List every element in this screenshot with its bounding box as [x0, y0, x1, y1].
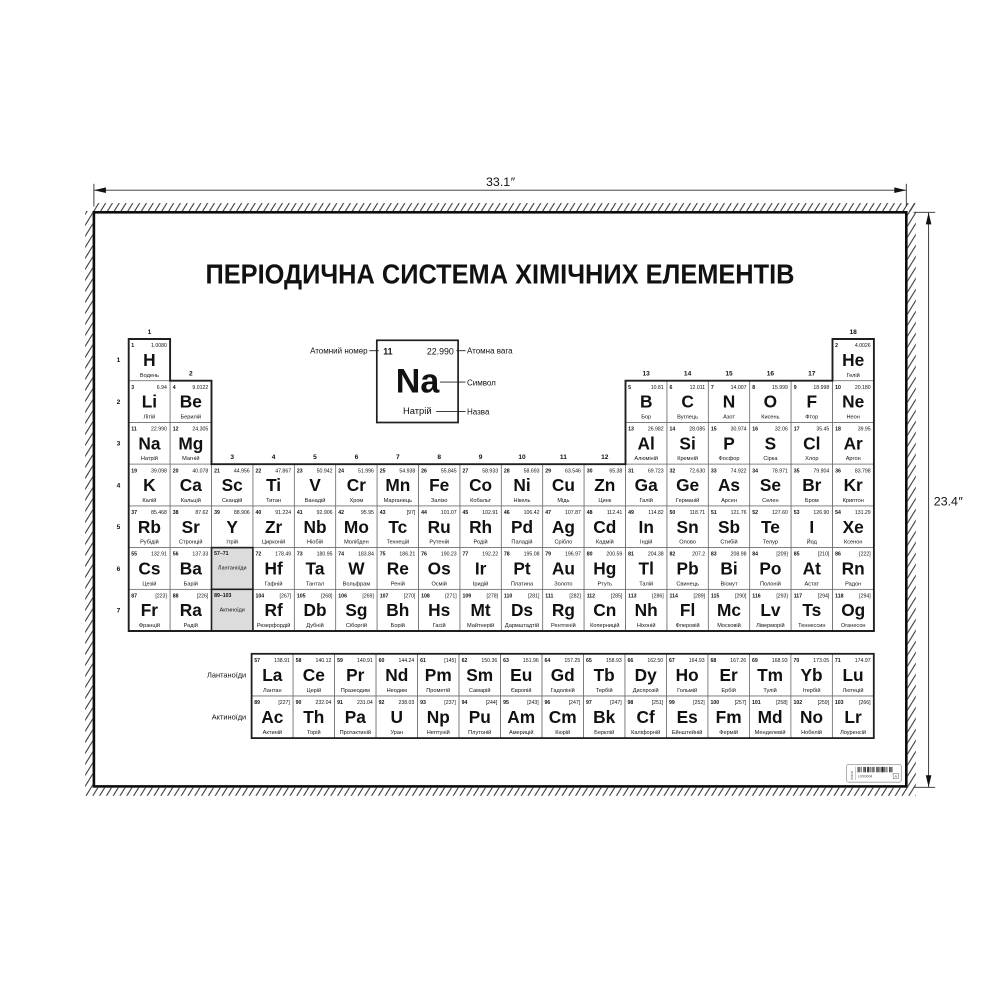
svg-text:Гольмій: Гольмій	[677, 687, 697, 694]
svg-text:118: 118	[835, 593, 843, 599]
svg-text:74: 74	[338, 552, 344, 558]
svg-text:232.04: 232.04	[315, 700, 331, 706]
svg-text:10: 10	[518, 454, 526, 461]
svg-text:Ніобій: Ніобій	[307, 539, 323, 546]
svg-text:44.956: 44.956	[234, 468, 250, 474]
svg-text:23: 23	[297, 468, 303, 474]
svg-text:87: 87	[131, 593, 137, 599]
svg-text:Олово: Олово	[679, 540, 696, 546]
svg-text:Телур: Телур	[763, 540, 778, 546]
svg-text:Цезій: Цезій	[142, 580, 156, 587]
svg-text:Pt: Pt	[513, 559, 531, 579]
svg-text:100: 100	[710, 700, 719, 706]
svg-text:58.933: 58.933	[482, 468, 498, 474]
svg-text:Ga: Ga	[635, 475, 658, 495]
svg-text:54: 54	[835, 510, 841, 516]
svg-text:Nh: Nh	[635, 600, 658, 620]
svg-text:196.97: 196.97	[565, 552, 581, 558]
svg-text:[227]: [227]	[278, 700, 290, 706]
svg-text:Водень: Водень	[140, 373, 159, 379]
svg-text:[281]: [281]	[528, 593, 540, 599]
svg-text:32.06: 32.06	[775, 427, 788, 433]
svg-text:207.2: 207.2	[692, 552, 705, 558]
svg-text:74.922: 74.922	[731, 468, 747, 474]
svg-text:Технецій: Технецій	[386, 539, 409, 546]
svg-text:92.906: 92.906	[317, 510, 333, 516]
svg-text:Ar: Ar	[844, 433, 863, 453]
svg-text:Фосфор: Фосфор	[719, 456, 740, 462]
svg-text:101.07: 101.07	[441, 510, 457, 516]
svg-text:Цирконій: Цирконій	[262, 539, 285, 546]
svg-text:8: 8	[752, 385, 755, 391]
svg-text:24.305: 24.305	[192, 427, 208, 433]
svg-text:Іридій: Іридій	[473, 580, 488, 587]
svg-text:92: 92	[379, 700, 385, 706]
svg-text:Полоній: Полоній	[760, 580, 781, 587]
svg-text:Fr: Fr	[141, 600, 159, 620]
svg-text:Ge: Ge	[676, 475, 699, 495]
svg-text:95.95: 95.95	[361, 510, 374, 516]
svg-text:Ітрій: Ітрій	[226, 539, 238, 546]
svg-text:Кадмій: Кадмій	[596, 539, 614, 546]
svg-text:Al: Al	[638, 433, 655, 453]
svg-text:Барій: Барій	[184, 580, 198, 587]
svg-text:Берклій: Берклій	[594, 729, 614, 736]
svg-text:18: 18	[835, 427, 841, 433]
svg-text:72.630: 72.630	[689, 468, 705, 474]
svg-text:brand: brand	[850, 771, 854, 780]
svg-text:At: At	[803, 559, 821, 579]
svg-text:32: 32	[670, 468, 676, 474]
svg-text:Ir: Ir	[475, 559, 487, 579]
svg-text:[244]: [244]	[486, 700, 498, 706]
svg-text:Ac: Ac	[261, 707, 283, 727]
svg-text:Sn: Sn	[677, 517, 699, 537]
svg-text:Ba: Ba	[180, 559, 202, 579]
svg-text:Cr: Cr	[347, 475, 366, 495]
svg-text:Нобелій: Нобелій	[801, 729, 822, 736]
svg-text:58: 58	[296, 658, 302, 664]
svg-text:11: 11	[131, 427, 137, 433]
svg-text:Паладій: Паладій	[511, 539, 532, 546]
svg-text:Самарій: Самарій	[469, 687, 491, 694]
svg-text:Літій: Літій	[143, 414, 155, 421]
svg-text:11: 11	[383, 347, 392, 357]
svg-text:Золото: Золото	[554, 581, 572, 587]
svg-text:Сірка: Сірка	[763, 456, 778, 462]
svg-text:N: N	[723, 392, 735, 412]
svg-text:Re: Re	[387, 559, 409, 579]
svg-text:Mn: Mn	[385, 475, 410, 495]
svg-text:Dy: Dy	[635, 665, 657, 685]
svg-text:Cd: Cd	[593, 517, 616, 537]
svg-text:1: 1	[148, 329, 152, 336]
svg-text:[293]: [293]	[776, 593, 788, 599]
svg-text:20.180: 20.180	[855, 385, 871, 391]
svg-text:As: As	[718, 475, 740, 495]
svg-text:Францій: Францій	[139, 622, 160, 629]
svg-text:63: 63	[503, 658, 509, 664]
svg-text:Er: Er	[719, 665, 738, 685]
svg-text:[259]: [259]	[818, 700, 830, 706]
svg-text:Gd: Gd	[551, 665, 575, 685]
svg-text:85: 85	[794, 552, 800, 558]
svg-text:Уран: Уран	[390, 730, 403, 736]
svg-text:20: 20	[173, 468, 179, 474]
svg-text:25: 25	[380, 468, 386, 474]
svg-text:[257]: [257]	[735, 700, 747, 706]
svg-text:103: 103	[835, 700, 844, 706]
svg-text:52: 52	[752, 510, 758, 516]
svg-text:Cn: Cn	[593, 600, 616, 620]
svg-text:Ртуть: Ртуть	[597, 581, 612, 587]
svg-text:Тантал: Тантал	[306, 581, 324, 587]
svg-text:68: 68	[710, 658, 716, 664]
svg-text:93: 93	[420, 700, 426, 706]
svg-text:Mt: Mt	[471, 600, 491, 620]
svg-text:L0X0004: L0X0004	[858, 775, 872, 779]
svg-text:W: W	[348, 559, 365, 579]
svg-text:114.82: 114.82	[648, 510, 664, 516]
svg-text:Og: Og	[841, 600, 865, 620]
svg-text:4: 4	[117, 482, 121, 489]
svg-text:14: 14	[670, 427, 676, 433]
svg-text:[294]: [294]	[818, 593, 830, 599]
svg-text:28: 28	[504, 468, 510, 474]
svg-text:132.91: 132.91	[151, 552, 167, 558]
svg-text:Ce: Ce	[303, 665, 325, 685]
svg-text:Tb: Tb	[594, 665, 615, 685]
svg-text:40: 40	[256, 510, 262, 516]
svg-text:73: 73	[297, 552, 303, 558]
svg-text:186.21: 186.21	[399, 552, 415, 558]
svg-text:16: 16	[767, 371, 775, 378]
svg-text:Стибій: Стибій	[720, 539, 737, 546]
svg-text:231.04: 231.04	[357, 700, 373, 706]
svg-text:Ts: Ts	[802, 600, 821, 620]
svg-text:57–71: 57–71	[214, 551, 229, 557]
svg-text:Молібден: Молібден	[344, 540, 369, 546]
svg-text:Os: Os	[428, 559, 451, 579]
svg-text:69: 69	[752, 658, 758, 664]
svg-text:91.224: 91.224	[275, 510, 291, 516]
svg-text:Bk: Bk	[593, 707, 615, 727]
svg-text:B: B	[640, 392, 652, 412]
svg-text:Талій: Талій	[639, 580, 653, 587]
svg-text:He: He	[842, 350, 864, 370]
svg-text:190.23: 190.23	[441, 552, 457, 558]
svg-text:Co: Co	[469, 475, 492, 495]
svg-text:88.906: 88.906	[234, 510, 250, 516]
svg-text:12.011: 12.011	[690, 385, 706, 391]
svg-text:3: 3	[131, 385, 134, 391]
svg-text:[247]: [247]	[569, 700, 581, 706]
svg-text:Mo: Mo	[344, 517, 369, 537]
svg-text:Ho: Ho	[676, 665, 699, 685]
svg-text:Pa: Pa	[345, 707, 367, 727]
svg-text:Tc: Tc	[388, 517, 407, 537]
svg-text:63.546: 63.546	[565, 468, 581, 474]
svg-text:40.078: 40.078	[192, 468, 208, 474]
svg-text:17: 17	[794, 427, 800, 433]
svg-text:Кобальт: Кобальт	[470, 498, 491, 504]
svg-text:Неодим: Неодим	[387, 688, 408, 694]
svg-text:Rb: Rb	[138, 517, 161, 537]
svg-text:Берилій: Берилій	[180, 414, 201, 421]
svg-text:127.60: 127.60	[772, 510, 788, 516]
svg-text:33: 33	[711, 468, 717, 474]
svg-text:Натрій: Натрій	[141, 455, 158, 462]
svg-text:Yb: Yb	[801, 665, 823, 685]
svg-text:78.971: 78.971	[772, 468, 788, 474]
svg-text:[266]: [266]	[859, 700, 871, 706]
svg-text:164.93: 164.93	[689, 658, 705, 664]
svg-text:150.36: 150.36	[481, 658, 497, 664]
svg-text:43: 43	[380, 510, 386, 516]
svg-text:S: S	[765, 433, 777, 453]
svg-text:Лантаноїди: Лантаноїди	[218, 566, 247, 572]
svg-text:Pd: Pd	[511, 517, 533, 537]
svg-text:Свинець: Свинець	[676, 581, 699, 587]
svg-text:Sr: Sr	[182, 517, 201, 537]
svg-text:Nb: Nb	[303, 517, 326, 537]
svg-text:13: 13	[628, 427, 634, 433]
svg-text:64: 64	[545, 658, 551, 664]
svg-text:104: 104	[256, 593, 265, 599]
svg-text:8: 8	[437, 454, 441, 461]
svg-text:Осмій: Осмій	[432, 580, 447, 587]
svg-text:80: 80	[587, 552, 593, 558]
svg-text:Астат: Астат	[805, 581, 820, 587]
svg-text:Азот: Азот	[723, 415, 735, 421]
svg-text:Fl: Fl	[680, 600, 695, 620]
svg-text:Гелій: Гелій	[847, 372, 860, 379]
svg-text:35.45: 35.45	[816, 427, 829, 433]
svg-text:Вісмут: Вісмут	[720, 581, 737, 587]
svg-text:44: 44	[421, 510, 427, 516]
svg-text:140.91: 140.91	[357, 658, 373, 664]
svg-text:39.95: 39.95	[858, 427, 871, 433]
svg-text:Європій: Європій	[511, 687, 532, 694]
svg-text:85.468: 85.468	[151, 510, 167, 516]
svg-text:178.49: 178.49	[275, 552, 291, 558]
svg-text:[294]: [294]	[859, 593, 871, 599]
svg-text:Криптон: Криптон	[843, 498, 864, 504]
svg-text:Атомна вага: Атомна вага	[467, 347, 513, 356]
svg-text:83.798: 83.798	[855, 468, 871, 474]
svg-text:Y: Y	[226, 517, 238, 537]
svg-text:O: O	[764, 392, 777, 412]
svg-text:Bi: Bi	[720, 559, 737, 579]
svg-text:Be: Be	[180, 392, 202, 412]
svg-text:Lr: Lr	[844, 707, 862, 727]
svg-text:F: F	[807, 392, 818, 412]
svg-text:99: 99	[669, 700, 675, 706]
svg-text:6.94: 6.94	[157, 385, 167, 391]
svg-text:Лантан: Лантан	[263, 688, 282, 694]
svg-text:Германій: Германій	[676, 497, 699, 504]
svg-text:36: 36	[835, 468, 841, 474]
svg-text:158.93: 158.93	[606, 658, 622, 664]
svg-text:Ca: Ca	[180, 475, 202, 495]
svg-text:Np: Np	[427, 707, 450, 727]
svg-text:78: 78	[504, 552, 510, 558]
svg-text:Hg: Hg	[593, 559, 616, 579]
svg-text:Лютецій: Лютецій	[843, 687, 864, 694]
svg-text:117: 117	[794, 593, 802, 599]
svg-text:26: 26	[421, 468, 427, 474]
svg-text:61: 61	[420, 658, 426, 664]
svg-text:Менделевій: Менделевій	[755, 729, 786, 736]
svg-text:4: 4	[173, 385, 176, 391]
svg-text:173.05: 173.05	[813, 658, 829, 664]
svg-text:7: 7	[117, 607, 121, 614]
svg-text:5: 5	[313, 454, 317, 461]
svg-text:18.998: 18.998	[813, 385, 829, 391]
svg-text:22: 22	[256, 468, 262, 474]
svg-text:167.26: 167.26	[730, 658, 746, 664]
svg-text:118.71: 118.71	[690, 510, 706, 516]
svg-text:Cl: Cl	[803, 433, 820, 453]
svg-text:[145]: [145]	[444, 658, 456, 664]
svg-text:33.1″: 33.1″	[486, 175, 515, 189]
svg-text:102: 102	[793, 700, 802, 706]
svg-text:Pu: Pu	[469, 707, 491, 727]
svg-text:88: 88	[173, 593, 179, 599]
svg-text:121.76: 121.76	[731, 510, 747, 516]
svg-text:75: 75	[380, 552, 386, 558]
svg-text:53: 53	[794, 510, 800, 516]
svg-text:Ni: Ni	[513, 475, 530, 495]
svg-text:69.723: 69.723	[648, 468, 664, 474]
svg-text:107.87: 107.87	[565, 510, 581, 516]
svg-text:3: 3	[117, 441, 121, 448]
svg-text:15: 15	[711, 427, 717, 433]
svg-text:Гасій: Гасій	[433, 622, 446, 629]
svg-text:Na: Na	[396, 363, 441, 401]
svg-text:Індій: Індій	[640, 539, 652, 546]
svg-text:ПЕРІОДИЧНА СИСТЕМА ХІМІЧНИХ ЕЛ: ПЕРІОДИЧНА СИСТЕМА ХІМІЧНИХ ЕЛЕМЕНТІВ	[206, 258, 795, 289]
svg-text:Стронцій: Стронцій	[179, 539, 202, 546]
svg-text:110: 110	[504, 593, 512, 599]
svg-text:No: No	[800, 707, 823, 727]
svg-text:Pr: Pr	[346, 665, 365, 685]
svg-text:Цинк: Цинк	[598, 498, 611, 504]
svg-text:Кремній: Кремній	[677, 455, 698, 462]
svg-text:Th: Th	[303, 707, 324, 727]
svg-text:Рутеній: Рутеній	[429, 539, 449, 546]
svg-text:Rg: Rg	[552, 600, 575, 620]
svg-text:72: 72	[256, 552, 262, 558]
svg-text:Празеодим: Празеодим	[341, 688, 370, 694]
svg-text:Галій: Галій	[639, 497, 652, 504]
svg-text:Московій: Московій	[717, 622, 741, 629]
svg-text:[268]: [268]	[321, 593, 333, 599]
svg-text:Hs: Hs	[428, 600, 450, 620]
svg-text:101: 101	[752, 700, 761, 706]
svg-text:[210]: [210]	[818, 552, 830, 558]
svg-text:27: 27	[463, 468, 469, 474]
svg-text:9: 9	[794, 385, 797, 391]
svg-text:2: 2	[189, 371, 193, 378]
svg-text:Mg: Mg	[178, 433, 203, 453]
svg-text:Кюрій: Кюрій	[555, 729, 570, 736]
svg-text:Залізо: Залізо	[431, 498, 448, 504]
svg-text:Фтор: Фтор	[805, 415, 818, 421]
svg-text:Rn: Rn	[842, 559, 865, 579]
svg-text:2: 2	[835, 343, 838, 349]
svg-text:Pb: Pb	[677, 559, 699, 579]
svg-text:Марганець: Марганець	[384, 498, 412, 504]
svg-text:[269]: [269]	[362, 593, 374, 599]
svg-text:Sb: Sb	[718, 517, 740, 537]
svg-text:Si: Si	[679, 433, 695, 453]
svg-text:[209]: [209]	[776, 552, 788, 558]
svg-text:1: 1	[117, 357, 121, 364]
svg-text:Rf: Rf	[264, 600, 282, 620]
svg-text:[282]: [282]	[569, 593, 581, 599]
svg-text:[271]: [271]	[445, 593, 457, 599]
svg-text:Каліфорній: Каліфорній	[631, 729, 660, 736]
svg-text:Lv: Lv	[760, 600, 781, 620]
svg-text:Назва: Назва	[467, 408, 490, 417]
svg-text:Tm: Tm	[757, 665, 783, 685]
svg-text:Тербій: Тербій	[596, 687, 613, 694]
svg-text:Mc: Mc	[717, 600, 741, 620]
svg-text:105: 105	[297, 593, 306, 599]
svg-text:C: C	[681, 392, 693, 412]
svg-text:7: 7	[396, 454, 400, 461]
svg-text:4: 4	[272, 454, 276, 461]
svg-text:Флеровій: Флеровій	[676, 622, 700, 629]
svg-text:77: 77	[463, 552, 469, 558]
svg-text:15: 15	[725, 371, 733, 378]
svg-text:Нептуній: Нептуній	[427, 729, 450, 736]
svg-text:[289]: [289]	[694, 593, 706, 599]
svg-text:Реній: Реній	[391, 580, 405, 587]
svg-text:Диспрозій: Диспрозій	[633, 687, 659, 694]
svg-text:Борій: Борій	[391, 622, 405, 629]
svg-text:Ербій: Ербій	[721, 687, 735, 694]
svg-text:62: 62	[462, 658, 468, 664]
svg-text:Ейнштейній: Ейнштейній	[672, 729, 703, 736]
svg-text:Атомний номер: Атомний номер	[310, 347, 368, 356]
svg-text:Cu: Cu	[552, 475, 575, 495]
svg-text:6: 6	[355, 454, 359, 461]
svg-text:Cf: Cf	[637, 707, 655, 727]
svg-text:71: 71	[835, 658, 841, 664]
svg-text:Es: Es	[677, 707, 698, 727]
svg-text:Хром: Хром	[349, 498, 363, 504]
svg-text:Rh: Rh	[469, 517, 492, 537]
svg-text:Cs: Cs	[138, 559, 160, 579]
svg-text:V: V	[309, 475, 321, 495]
svg-text:1: 1	[131, 343, 134, 349]
svg-text:49: 49	[628, 510, 634, 516]
svg-text:Скандій: Скандій	[222, 497, 242, 504]
svg-text:89–103: 89–103	[214, 593, 231, 599]
svg-text:115: 115	[711, 593, 719, 599]
svg-text:47: 47	[545, 510, 551, 516]
svg-text:H: H	[143, 350, 155, 370]
svg-text:Титан: Титан	[266, 498, 281, 504]
svg-text:Алюміній: Алюміній	[634, 455, 658, 462]
svg-text:Актиноїди: Актиноїди	[220, 607, 245, 613]
svg-text:Pm: Pm	[425, 665, 452, 685]
svg-text:Ксенон: Ксенон	[844, 540, 862, 546]
svg-text:94: 94	[462, 700, 468, 706]
svg-text:86: 86	[835, 552, 841, 558]
